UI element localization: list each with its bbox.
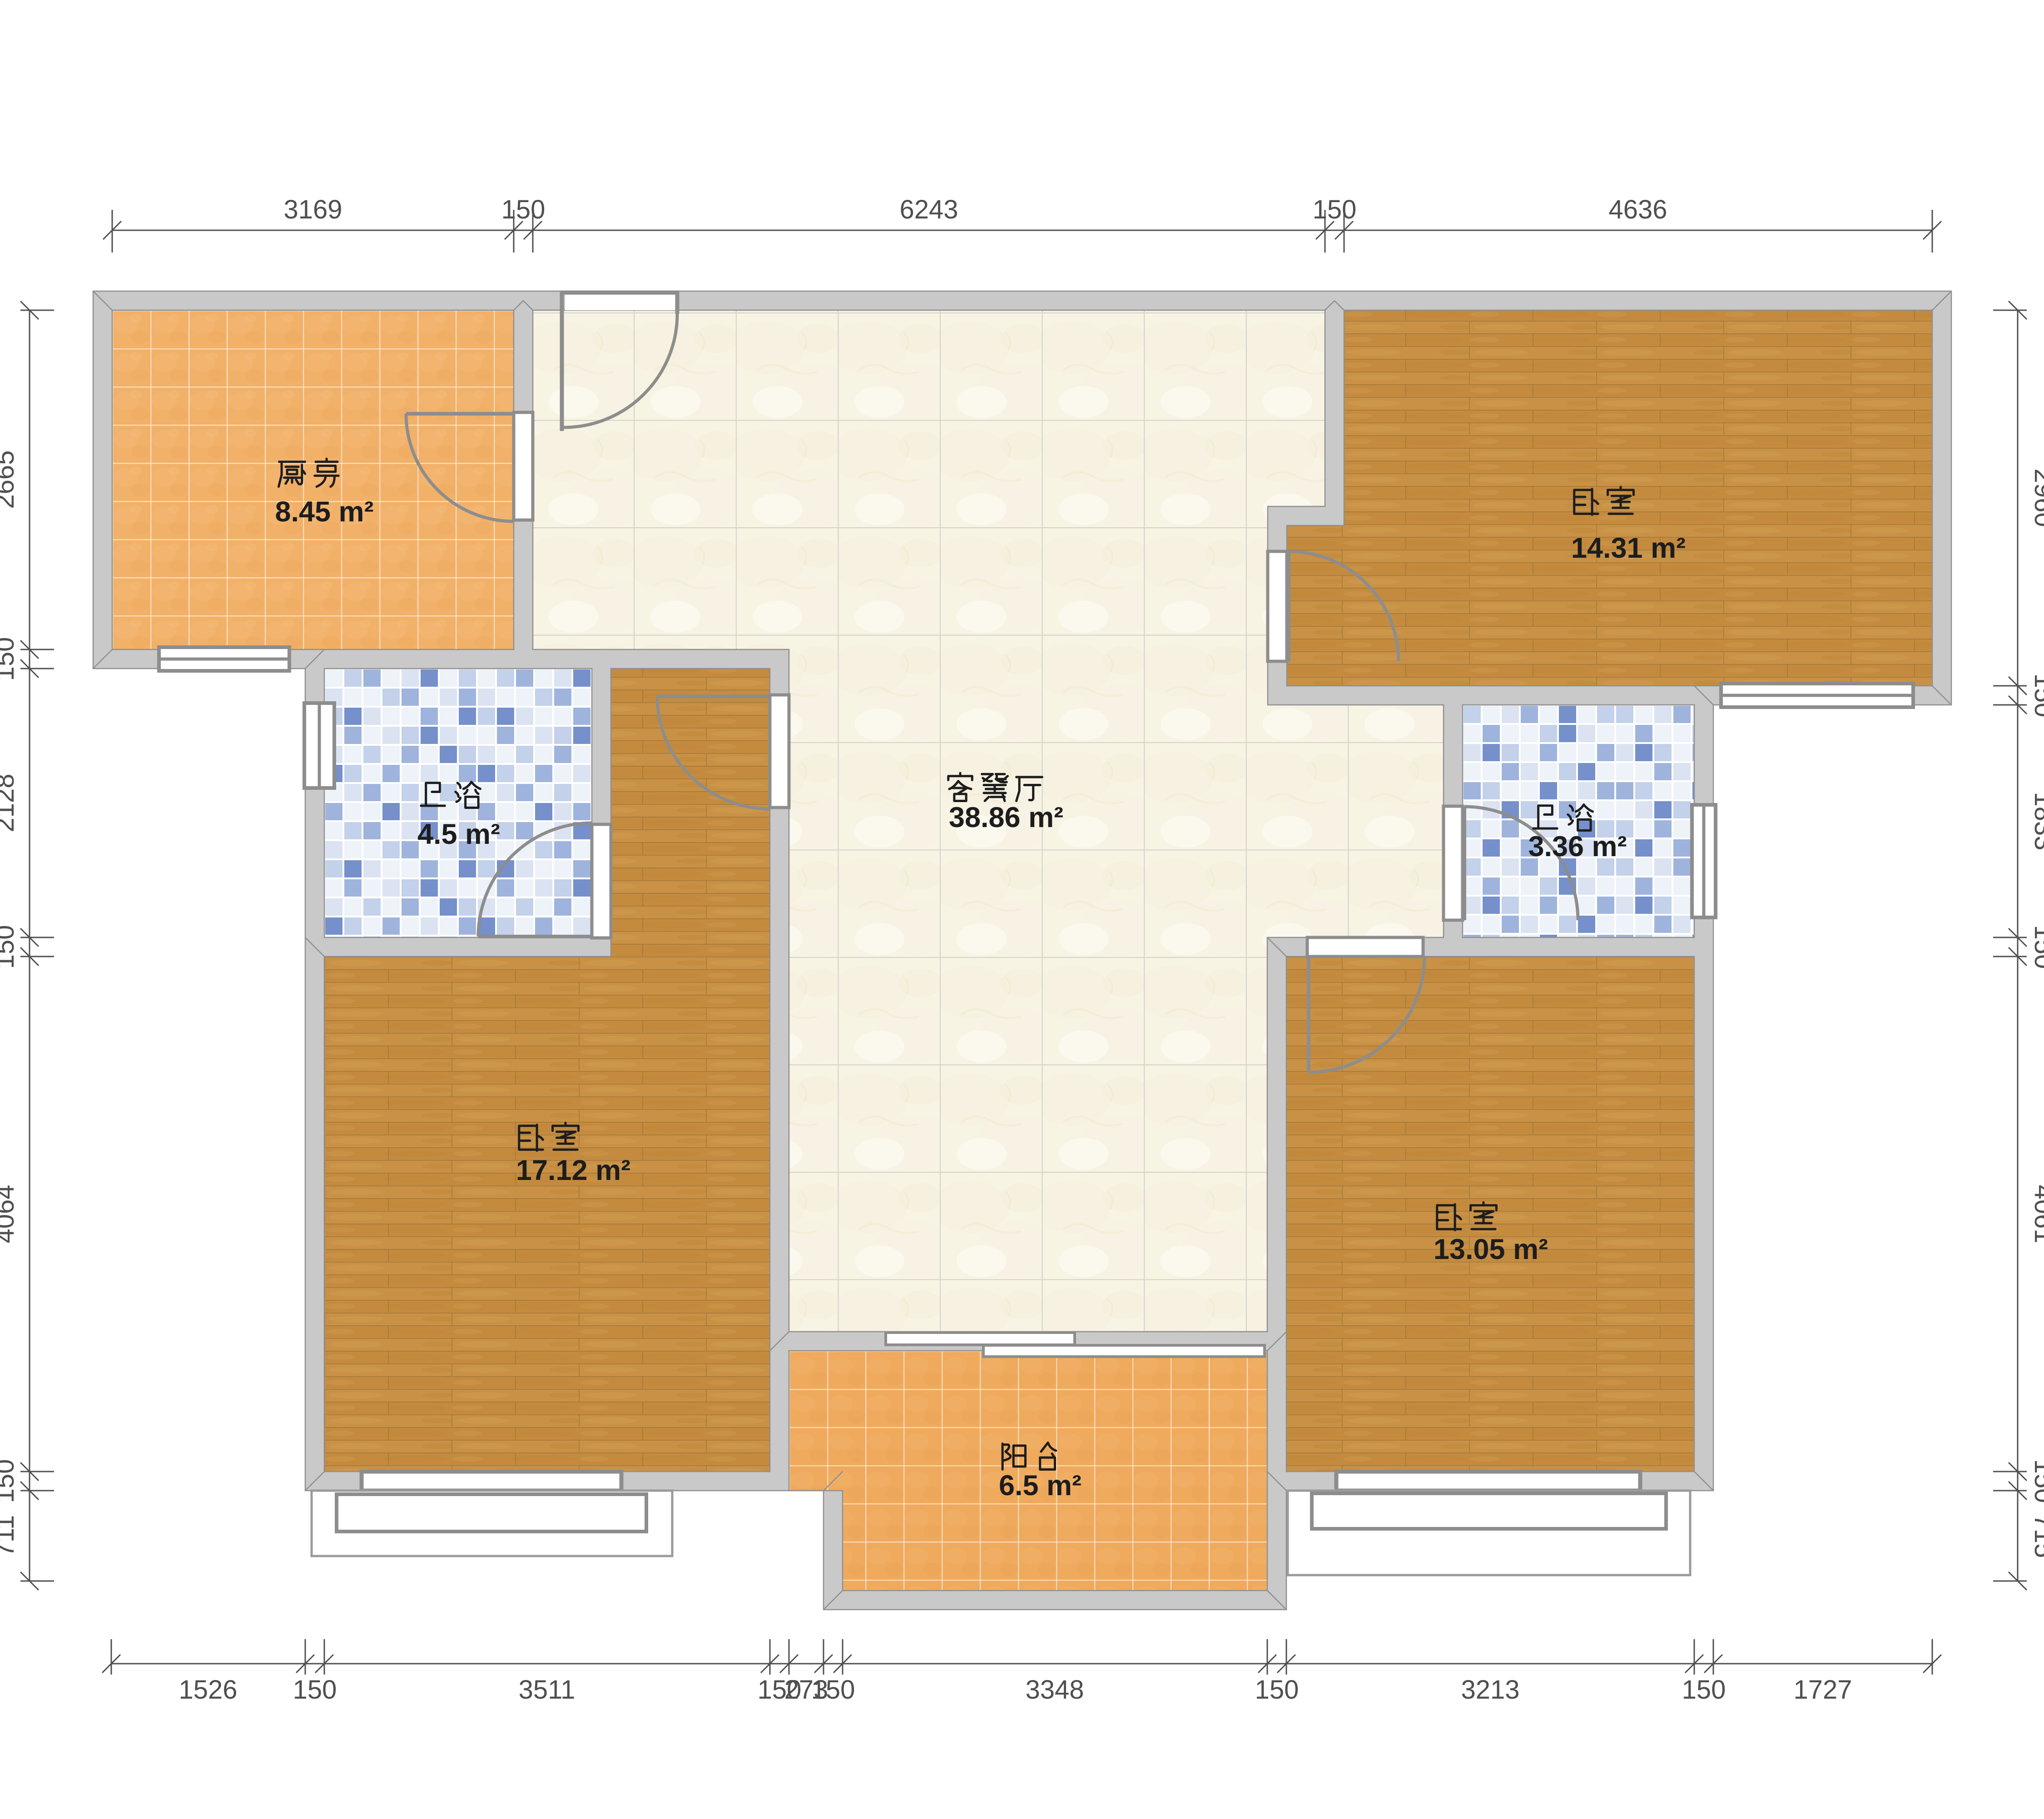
svg-text:17.12 m²: 17.12 m² (516, 1155, 630, 1186)
svg-text:150: 150 (2029, 1459, 2044, 1503)
svg-text:150: 150 (293, 1675, 337, 1705)
svg-text:4636: 4636 (1608, 195, 1667, 224)
svg-text:38.86 m²: 38.86 m² (949, 802, 1063, 833)
svg-text:14.31 m²: 14.31 m² (1571, 532, 1686, 564)
svg-text:711: 711 (0, 1515, 20, 1557)
svg-text:1526: 1526 (179, 1675, 237, 1705)
svg-text:715: 715 (2029, 1514, 2044, 1558)
svg-text:2128: 2128 (0, 773, 20, 832)
svg-text:3511: 3511 (519, 1675, 575, 1705)
svg-text:3.36 m²: 3.36 m² (1528, 831, 1627, 862)
svg-text:1833: 1833 (2029, 792, 2044, 850)
svg-text:4061: 4061 (2029, 1185, 2044, 1243)
svg-text:150: 150 (1682, 1675, 1726, 1705)
svg-text:6243: 6243 (899, 195, 958, 224)
svg-text:3169: 3169 (283, 195, 342, 224)
svg-text:150: 150 (0, 925, 20, 969)
svg-text:150: 150 (0, 1459, 20, 1503)
svg-text:4.5 m²: 4.5 m² (417, 818, 500, 850)
svg-text:150: 150 (1255, 1675, 1299, 1705)
svg-text:2665: 2665 (0, 450, 20, 509)
svg-text:2960: 2960 (2029, 468, 2044, 527)
svg-text:150: 150 (1313, 195, 1357, 224)
svg-text:3348: 3348 (1025, 1675, 1084, 1705)
svg-text:8.45 m²: 8.45 m² (275, 496, 373, 528)
svg-text:150: 150 (811, 1675, 855, 1705)
svg-text:13.05 m²: 13.05 m² (1434, 1234, 1548, 1265)
svg-text:1727: 1727 (1793, 1675, 1852, 1705)
svg-text:150: 150 (2029, 925, 2044, 969)
svg-text:4064: 4064 (0, 1185, 20, 1243)
svg-text:150: 150 (0, 637, 20, 681)
svg-text:6.5 m²: 6.5 m² (999, 1470, 1082, 1502)
svg-text:150: 150 (2029, 674, 2044, 718)
svg-text:150: 150 (501, 195, 546, 224)
svg-text:3213: 3213 (1461, 1675, 1519, 1705)
